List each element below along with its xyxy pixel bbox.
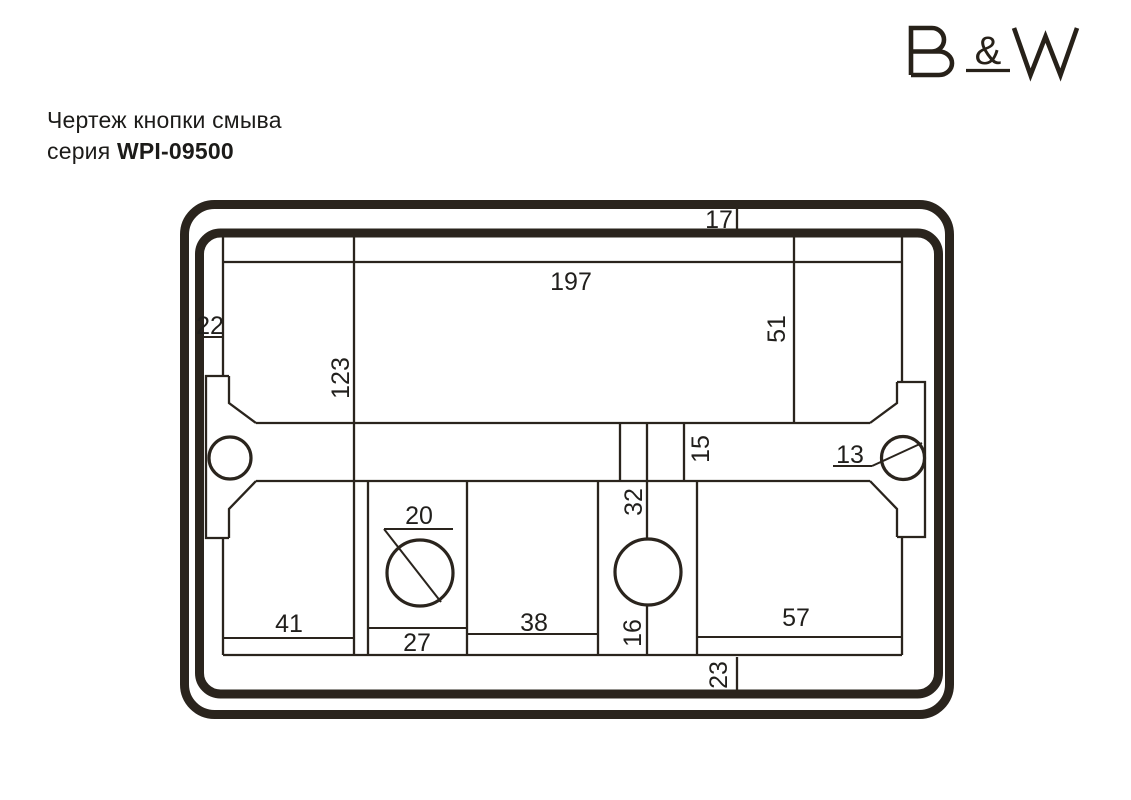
dim-label-bottom-col-mid: 38 — [520, 609, 548, 637]
left-mounting-tab — [206, 376, 256, 538]
right-tab-top-bevel — [870, 382, 897, 423]
technical-drawing-svg: & — [0, 0, 1131, 800]
left-screw-hole — [209, 437, 251, 479]
right-mounting-tab — [870, 382, 925, 537]
dim-label-left-button-hole: 20 — [405, 502, 433, 530]
dim-label-bar-height: 15 — [687, 435, 715, 463]
logo-letter-b — [911, 28, 952, 75]
leader-13-diagonal — [872, 443, 922, 466]
dim-label-right-screw: 13 — [836, 441, 864, 469]
central-bar — [256, 423, 870, 539]
brand-logo: & — [911, 28, 1077, 75]
dim-label-plate-width: 197 — [550, 268, 592, 296]
left-tab-top-bevel — [229, 376, 256, 423]
center-button-hole — [615, 539, 681, 605]
left-tab-bottom-bevel — [229, 481, 256, 538]
dim-label-right-panel-height: 51 — [763, 315, 791, 343]
left-button-hole — [387, 540, 453, 606]
dim-label-bar-to-circle: 32 — [620, 488, 648, 516]
right-tab-bottom-bevel — [870, 481, 897, 537]
right-tab-outline — [897, 382, 925, 537]
dim-label-plate-height: 123 — [327, 357, 355, 399]
dim-label-bottom-col-left: 41 — [275, 610, 303, 638]
logo-letter-w — [1014, 28, 1077, 75]
dim-label-bottom-rim: 23 — [705, 661, 733, 689]
dim-label-bottom-col-right: 57 — [782, 604, 810, 632]
inner-frame — [200, 233, 939, 694]
dimension-labels: 17 197 22 123 51 15 13 32 20 41 27 38 16… — [196, 206, 864, 689]
plate-outline — [223, 237, 902, 655]
dim-label-left-rim: 22 — [196, 312, 224, 340]
dimension-leader-lines — [197, 337, 922, 638]
dim-label-circle-to-bottom: 16 — [619, 619, 647, 647]
logo-ampersand: & — [975, 29, 1002, 73]
dim-label-bottom-divider: 27 — [403, 629, 431, 657]
dim-label-top-rim: 17 — [705, 206, 733, 234]
